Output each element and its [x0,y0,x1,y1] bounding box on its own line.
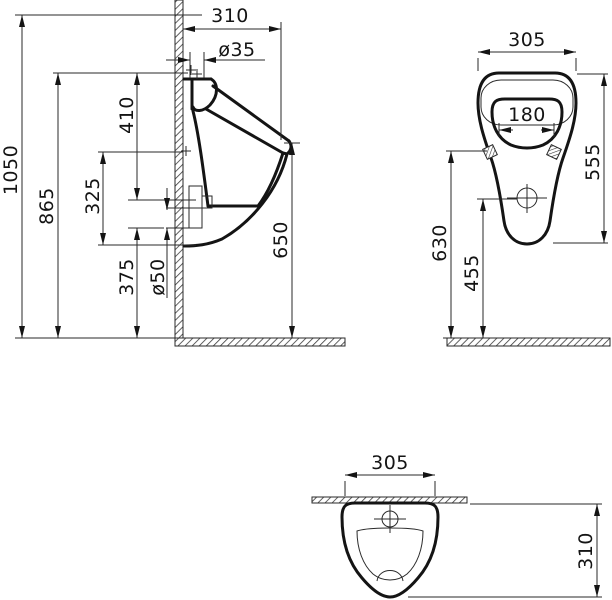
top-view: 305 310 [312,452,602,597]
floor-section-front [447,338,610,346]
urinal-side-profile [184,69,291,246]
fixing-screw-left [483,145,498,160]
dim-drain-center-height: 455 [461,254,483,292]
urinal-technical-drawing: 310 ø35 1050 865 410 325 375 ø50 650 [0,0,612,600]
dim-front-width: 305 [508,29,546,51]
dim-fixing-height: 630 [429,224,451,262]
dim-outlet-diameter: ø50 [147,258,169,295]
wall-section [175,0,183,338]
dim-outlet-span: 325 [82,177,104,215]
dim-opening-width: 180 [508,104,546,126]
front-view: 305 180 555 630 455 [429,29,610,346]
dim-mounting-height: 865 [36,187,58,225]
dim-body-height: 555 [582,143,604,181]
fixing-screw-right [547,145,562,160]
drawing-sheet: 310 ø35 1050 865 410 325 375 ø50 650 [0,0,612,600]
floor-section [175,338,345,346]
dim-overall-height: 1050 [0,145,22,195]
dim-rim-height: 650 [270,221,292,259]
dim-inlet-to-outlet: 410 [116,96,138,134]
inner-bowl [357,528,423,580]
inlet-spud [374,505,406,533]
dim-top-depth: 310 [575,532,597,570]
dim-side-depth: 310 [211,5,249,27]
inner-drain-arc [377,571,403,582]
side-view: 310 ø35 1050 865 410 325 375 ø50 650 [0,0,345,346]
inner-bowl-front [208,153,283,206]
dim-outlet-height: 375 [116,258,138,296]
dim-inlet-diameter: ø35 [218,39,255,61]
inner-bowl-back [193,111,208,206]
dim-top-width: 305 [371,452,409,474]
